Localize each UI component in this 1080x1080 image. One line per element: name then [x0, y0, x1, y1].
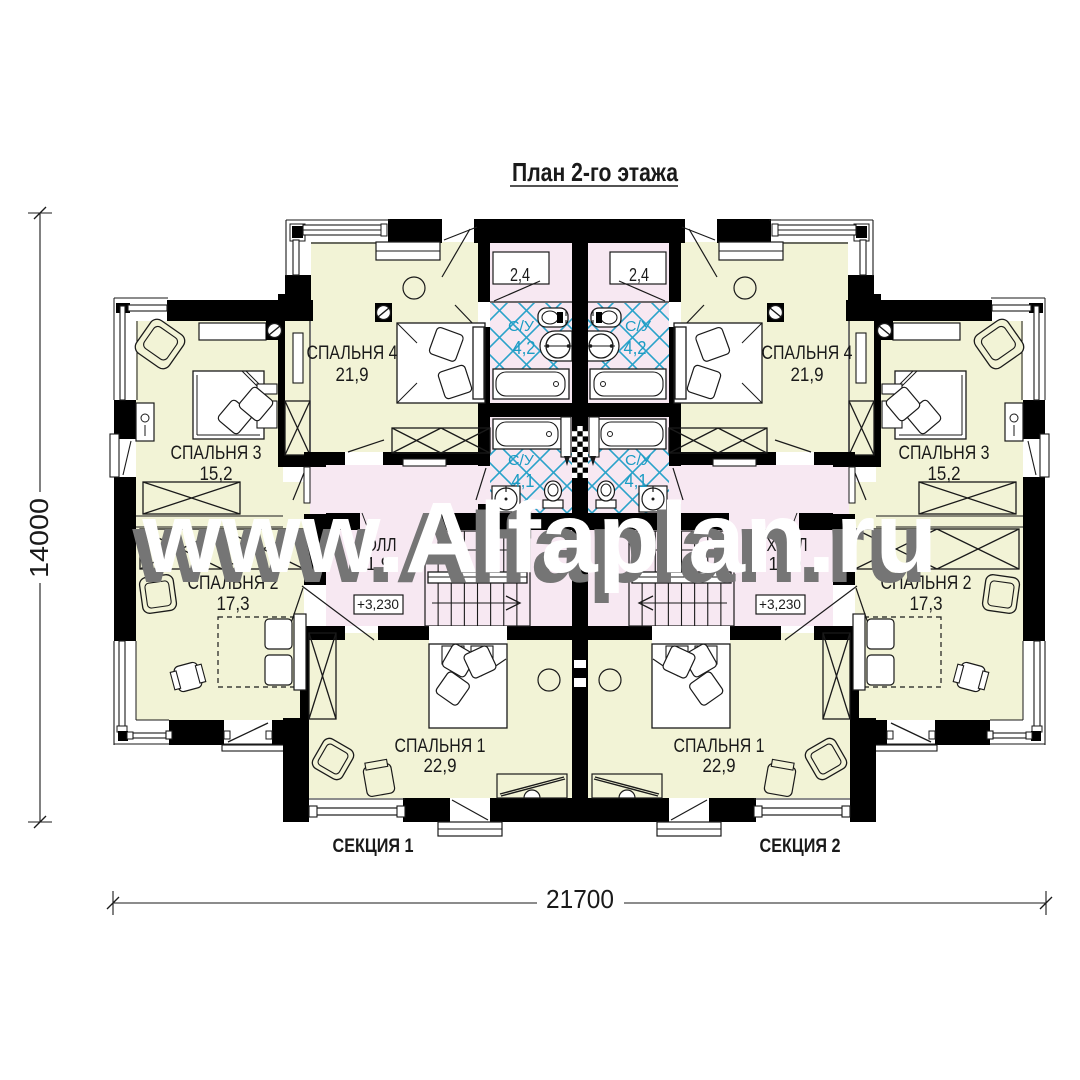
svg-text:С/У: С/У: [508, 452, 534, 469]
svg-text:2,4: 2,4: [510, 265, 530, 285]
svg-text:СПАЛЬНЯ 4: СПАЛЬНЯ 4: [762, 343, 853, 364]
svg-text:4,2: 4,2: [513, 338, 536, 358]
svg-text:4,2: 4,2: [624, 338, 647, 358]
svg-text:СПАЛЬНЯ 1: СПАЛЬНЯ 1: [395, 736, 486, 757]
svg-text:СПАЛЬНЯ 4: СПАЛЬНЯ 4: [307, 343, 398, 364]
svg-text:СПАЛЬНЯ 1: СПАЛЬНЯ 1: [674, 736, 765, 757]
svg-text:21,9: 21,9: [336, 365, 369, 386]
svg-text:21700: 21700: [546, 884, 614, 914]
svg-text:22,9: 22,9: [703, 756, 736, 777]
svg-text:План 2-го этажа: План 2-го этажа: [512, 157, 678, 187]
svg-text:СПАЛЬНЯ 3: СПАЛЬНЯ 3: [899, 443, 990, 464]
svg-text:2,4: 2,4: [629, 265, 649, 285]
svg-text:14000: 14000: [24, 498, 54, 578]
svg-text:СЕКЦИЯ 1: СЕКЦИЯ 1: [333, 836, 414, 857]
svg-text:www.Alfaplan.ru: www.Alfaplan.ru: [141, 482, 937, 594]
svg-text:С/У: С/У: [625, 452, 651, 469]
svg-text:22,9: 22,9: [424, 756, 457, 777]
svg-text:21,9: 21,9: [791, 365, 824, 386]
svg-text:С/У: С/У: [625, 318, 651, 335]
svg-text:С/У: С/У: [508, 318, 534, 335]
svg-text:СПАЛЬНЯ 3: СПАЛЬНЯ 3: [171, 443, 262, 464]
svg-text:СЕКЦИЯ 2: СЕКЦИЯ 2: [760, 836, 841, 857]
